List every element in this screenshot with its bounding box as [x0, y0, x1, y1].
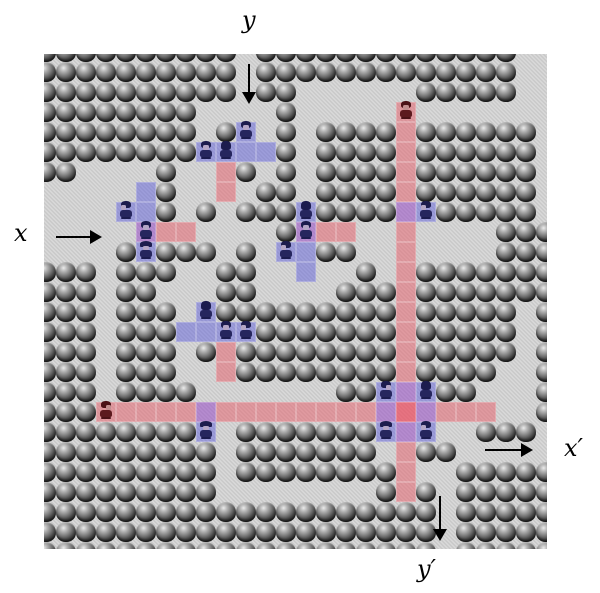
boulder-tile: [496, 282, 516, 302]
boulder-tile: [76, 462, 96, 482]
overlap-purple-tile: [396, 382, 416, 402]
boulder-tile: [376, 502, 396, 522]
boulder-tile: [216, 82, 236, 102]
boulder-tile: [296, 302, 316, 322]
boulder-tile: [276, 82, 296, 102]
sightline-red-tile: [396, 322, 416, 342]
sightline-red-tile: [316, 402, 336, 422]
boulder-tile: [356, 202, 376, 222]
boulder-tile: [76, 362, 96, 382]
boulder-tile: [276, 302, 296, 322]
boulder-tile: [496, 142, 516, 162]
boulder-tile: [496, 342, 516, 362]
boulder-tile: [216, 282, 236, 302]
boulder-tile: [456, 502, 476, 522]
boulder-tile: [276, 322, 296, 342]
boulder-tile: [396, 502, 416, 522]
boulder-tile: [76, 142, 96, 162]
boulder-tile: [156, 242, 176, 262]
boulder-tile: [156, 362, 176, 382]
boulder-tile: [216, 62, 236, 82]
boulder-tile: [136, 362, 156, 382]
boulder-tile: [44, 342, 56, 362]
axis-label-y-prime: y′: [417, 557, 436, 581]
boulder-tile: [256, 502, 276, 522]
boulder-tile: [496, 222, 516, 242]
sightline-red-tile: [436, 402, 456, 422]
boulder-tile: [176, 382, 196, 402]
boulder-tile: [156, 122, 176, 142]
boulder-tile: [56, 162, 76, 182]
boulder-tile: [356, 362, 376, 382]
boulder-tile: [116, 362, 136, 382]
boulder-tile: [516, 422, 536, 442]
boulder-tile: [316, 142, 336, 162]
boulder-tile: [176, 54, 196, 62]
boulder-tile: [496, 242, 516, 262]
boulder-tile: [316, 422, 336, 442]
boulder-tile: [96, 142, 116, 162]
boulder-tile: [336, 62, 356, 82]
boulder-tile: [256, 542, 276, 549]
boulder-tile: [44, 362, 56, 382]
boulder-tile: [376, 182, 396, 202]
boulder-tile: [296, 502, 316, 522]
boulder-tile: [276, 542, 296, 549]
boulder-tile: [356, 282, 376, 302]
boulder-tile: [136, 382, 156, 402]
boulder-tile: [316, 302, 336, 322]
trainer-blue-tile: [136, 202, 156, 222]
boulder-tile: [436, 302, 456, 322]
boulder-tile: [176, 82, 196, 102]
boulder-tile: [356, 122, 376, 142]
boulder-tile: [436, 162, 456, 182]
boulder-tile: [56, 142, 76, 162]
boulder-tile: [336, 422, 356, 442]
boulder-tile: [476, 182, 496, 202]
boulder-tile: [476, 54, 496, 62]
boulder-tile: [256, 342, 276, 362]
boulder-tile: [156, 102, 176, 122]
boulder-tile: [436, 342, 456, 362]
boulder-tile: [176, 122, 196, 142]
boulder-tile: [456, 302, 476, 322]
axis-label-y: y: [242, 8, 256, 32]
boulder-tile: [56, 422, 76, 442]
trainer-sprite: [398, 101, 414, 119]
boulder-tile: [356, 182, 376, 202]
sightline-red-tile: [396, 142, 416, 162]
boulder-tile: [316, 322, 336, 342]
boulder-tile: [236, 542, 256, 549]
boulder-tile: [356, 502, 376, 522]
boulder-tile: [276, 202, 296, 222]
boulder-tile: [44, 302, 56, 322]
boulder-tile: [496, 542, 516, 549]
boulder-tile: [536, 242, 547, 262]
sightline-red-tile: [396, 162, 416, 182]
boulder-tile: [396, 54, 416, 62]
sightline-red-tile: [256, 402, 276, 422]
boulder-tile: [196, 342, 216, 362]
boulder-tile: [76, 122, 96, 142]
boulder-tile: [116, 382, 136, 402]
boulder-tile: [516, 242, 536, 262]
trainer-sprite: [98, 401, 114, 419]
boulder-tile: [116, 82, 136, 102]
overlap-purple-tile: [396, 422, 416, 442]
boulder-tile: [416, 322, 436, 342]
trainer-sprite: [198, 421, 214, 439]
sightline-red-tile: [396, 462, 416, 482]
boulder-tile: [256, 82, 276, 102]
boulder-tile: [276, 122, 296, 142]
boulder-tile: [196, 442, 216, 462]
boulder-tile: [276, 342, 296, 362]
boulder-tile: [176, 542, 196, 549]
sightline-red-tile: [276, 402, 296, 422]
boulder-tile: [276, 102, 296, 122]
boulder-tile: [136, 102, 156, 122]
boulder-tile: [76, 262, 96, 282]
boulder-tile: [256, 362, 276, 382]
boulder-tile: [456, 202, 476, 222]
boulder-tile: [296, 54, 316, 62]
boulder-tile: [156, 202, 176, 222]
boulder-tile: [236, 242, 256, 262]
trainer-sprite: [238, 121, 254, 139]
boulder-tile: [456, 262, 476, 282]
boulder-tile: [376, 142, 396, 162]
boulder-tile: [476, 302, 496, 322]
boulder-tile: [136, 54, 156, 62]
boulder-tile: [116, 302, 136, 322]
boulder-tile: [356, 542, 376, 549]
boulder-tile: [56, 462, 76, 482]
boulder-tile: [476, 82, 496, 102]
boulder-tile: [456, 362, 476, 382]
boulder-tile: [296, 542, 316, 549]
boulder-tile: [176, 462, 196, 482]
boulder-tile: [296, 62, 316, 82]
boulder-tile: [156, 142, 176, 162]
boulder-tile: [296, 322, 316, 342]
boulder-tile: [516, 262, 536, 282]
trainer-sprite: [218, 141, 234, 159]
boulder-tile: [436, 82, 456, 102]
x-arrow: [56, 236, 92, 238]
boulder-tile: [216, 502, 236, 522]
boulder-tile: [56, 402, 76, 422]
boulder-tile: [316, 182, 336, 202]
boulder-tile: [476, 202, 496, 222]
boulder-tile: [516, 202, 536, 222]
boulder-tile: [376, 322, 396, 342]
boulder-tile: [44, 382, 56, 402]
boulder-tile: [116, 422, 136, 442]
boulder-tile: [76, 402, 96, 422]
boulder-tile: [456, 522, 476, 542]
boulder-tile: [536, 522, 547, 542]
boulder-tile: [536, 362, 547, 382]
boulder-tile: [536, 482, 547, 502]
boulder-tile: [136, 342, 156, 362]
sightline-red-tile: [396, 342, 416, 362]
boulder-tile: [56, 362, 76, 382]
boulder-tile: [44, 502, 56, 522]
boulder-tile: [536, 342, 547, 362]
boulder-tile: [156, 522, 176, 542]
boulder-tile: [336, 54, 356, 62]
boulder-tile: [176, 522, 196, 542]
crossing-center-tile: [396, 402, 416, 422]
boulder-tile: [516, 122, 536, 142]
boulder-tile: [56, 482, 76, 502]
boulder-tile: [44, 82, 56, 102]
boulder-tile: [44, 262, 56, 282]
boulder-tile: [416, 442, 436, 462]
boulder-tile: [76, 282, 96, 302]
boulder-tile: [336, 122, 356, 142]
boulder-tile: [256, 522, 276, 542]
boulder-tile: [476, 122, 496, 142]
boulder-tile: [316, 202, 336, 222]
sightline-red-tile: [476, 402, 496, 422]
boulder-tile: [76, 302, 96, 322]
boulder-tile: [276, 462, 296, 482]
sightline-red-tile: [396, 362, 416, 382]
boulder-tile: [456, 182, 476, 202]
boulder-tile: [276, 142, 296, 162]
boulder-tile: [536, 302, 547, 322]
boulder-tile: [44, 122, 56, 142]
boulder-tile: [436, 122, 456, 142]
sightline-red-tile: [336, 402, 356, 422]
boulder-tile: [376, 542, 396, 549]
sightline-red-tile: [396, 302, 416, 322]
boulder-tile: [496, 462, 516, 482]
boulder-tile: [116, 102, 136, 122]
boulder-tile: [476, 542, 496, 549]
boulder-tile: [176, 482, 196, 502]
boulder-tile: [416, 502, 436, 522]
boulder-tile: [236, 422, 256, 442]
trainer-blue-tile: [296, 242, 316, 262]
boulder-tile: [456, 542, 476, 549]
boulder-tile: [416, 162, 436, 182]
boulder-tile: [536, 322, 547, 342]
boulder-tile: [76, 542, 96, 549]
boulder-tile: [336, 382, 356, 402]
boulder-tile: [416, 282, 436, 302]
boulder-tile: [536, 462, 547, 482]
boulder-tile: [236, 202, 256, 222]
boulder-tile: [76, 382, 96, 402]
boulder-tile: [396, 62, 416, 82]
boulder-tile: [136, 422, 156, 442]
boulder-tile: [476, 322, 496, 342]
boulder-tile: [276, 182, 296, 202]
boulder-tile: [316, 242, 336, 262]
map-viewport: [44, 54, 547, 549]
sightline-red-tile: [116, 402, 136, 422]
boulder-tile: [236, 462, 256, 482]
boulder-tile: [476, 362, 496, 382]
sightline-red-tile: [236, 402, 256, 422]
boulder-tile: [216, 262, 236, 282]
boulder-tile: [116, 502, 136, 522]
trainer-sprite: [418, 201, 434, 219]
boulder-tile: [44, 402, 56, 422]
boulder-tile: [276, 162, 296, 182]
trainer-sprite: [378, 421, 394, 439]
boulder-tile: [276, 362, 296, 382]
boulder-tile: [116, 62, 136, 82]
boulder-tile: [116, 142, 136, 162]
boulder-tile: [96, 462, 116, 482]
boulder-tile: [316, 62, 336, 82]
boulder-tile: [356, 62, 376, 82]
boulder-tile: [316, 542, 336, 549]
boulder-tile: [236, 342, 256, 362]
boulder-tile: [116, 282, 136, 302]
boulder-tile: [56, 54, 76, 62]
boulder-tile: [116, 322, 136, 342]
boulder-tile: [156, 502, 176, 522]
boulder-tile: [336, 442, 356, 462]
boulder-tile: [376, 342, 396, 362]
boulder-tile: [76, 62, 96, 82]
boulder-tile: [116, 262, 136, 282]
boulder-tile: [456, 282, 476, 302]
boulder-tile: [44, 62, 56, 82]
boulder-tile: [516, 142, 536, 162]
boulder-tile: [96, 542, 116, 549]
boulder-tile: [476, 262, 496, 282]
boulder-tile: [96, 482, 116, 502]
boulder-tile: [336, 182, 356, 202]
boulder-tile: [496, 482, 516, 502]
boulder-tile: [76, 342, 96, 362]
boulder-tile: [156, 54, 176, 62]
boulder-tile: [276, 222, 296, 242]
boulder-tile: [216, 122, 236, 142]
boulder-tile: [356, 422, 376, 442]
boulder-tile: [256, 302, 276, 322]
boulder-tile: [136, 522, 156, 542]
boulder-tile: [116, 542, 136, 549]
boulder-tile: [56, 302, 76, 322]
boulder-tile: [456, 142, 476, 162]
boulder-tile: [376, 522, 396, 542]
boulder-tile: [56, 442, 76, 462]
boulder-tile: [396, 542, 416, 549]
boulder-tile: [396, 522, 416, 542]
boulder-tile: [44, 522, 56, 542]
boulder-tile: [476, 522, 496, 542]
boulder-tile: [96, 82, 116, 102]
boulder-tile: [476, 62, 496, 82]
boulder-tile: [276, 442, 296, 462]
boulder-tile: [96, 502, 116, 522]
boulder-tile: [356, 442, 376, 462]
boulder-tile: [336, 162, 356, 182]
boulder-tile: [356, 54, 376, 62]
boulder-tile: [496, 202, 516, 222]
trainer-sprite: [298, 221, 314, 239]
sightline-red-tile: [156, 222, 176, 242]
boulder-tile: [276, 54, 296, 62]
boulder-tile: [96, 62, 116, 82]
boulder-tile: [356, 142, 376, 162]
boulder-tile: [44, 322, 56, 342]
boulder-tile: [336, 302, 356, 322]
boulder-tile: [196, 62, 216, 82]
boulder-tile: [516, 162, 536, 182]
pokemon-map-figure: y x x′ y′: [0, 0, 600, 593]
boulder-tile: [296, 342, 316, 362]
boulder-tile: [76, 322, 96, 342]
trainer-blue-tile: [176, 322, 196, 342]
boulder-tile: [416, 142, 436, 162]
sightline-red-tile: [316, 222, 336, 242]
overlap-purple-tile: [196, 402, 216, 422]
boulder-tile: [296, 442, 316, 462]
trainer-sprite: [198, 301, 214, 319]
boulder-tile: [196, 242, 216, 262]
boulder-tile: [136, 462, 156, 482]
boulder-tile: [56, 322, 76, 342]
boulder-tile: [416, 54, 436, 62]
boulder-tile: [316, 502, 336, 522]
y-arrow: [248, 64, 250, 94]
boulder-tile: [316, 362, 336, 382]
boulder-tile: [176, 142, 196, 162]
boulder-tile: [156, 182, 176, 202]
boulder-tile: [216, 542, 236, 549]
boulder-tile: [136, 502, 156, 522]
boulder-tile: [496, 62, 516, 82]
boulder-tile: [96, 442, 116, 462]
boulder-tile: [236, 362, 256, 382]
x-prime-arrow-head: [521, 443, 533, 457]
boulder-tile: [256, 54, 276, 62]
boulder-tile: [236, 162, 256, 182]
boulder-tile: [336, 242, 356, 262]
boulder-tile: [116, 122, 136, 142]
boulder-tile: [316, 162, 336, 182]
boulder-tile: [256, 422, 276, 442]
boulder-tile: [336, 202, 356, 222]
boulder-tile: [496, 502, 516, 522]
boulder-tile: [536, 502, 547, 522]
sightline-red-tile: [296, 402, 316, 422]
boulder-tile: [44, 142, 56, 162]
boulder-tile: [256, 182, 276, 202]
y-prime-arrow-head: [433, 529, 447, 541]
boulder-tile: [76, 102, 96, 122]
boulder-tile: [136, 142, 156, 162]
boulder-tile: [416, 302, 436, 322]
boulder-tile: [436, 282, 456, 302]
boulder-tile: [476, 142, 496, 162]
boulder-tile: [96, 522, 116, 542]
boulder-tile: [336, 462, 356, 482]
trainer-sprite: [198, 141, 214, 159]
boulder-tile: [316, 54, 336, 62]
boulder-tile: [456, 162, 476, 182]
